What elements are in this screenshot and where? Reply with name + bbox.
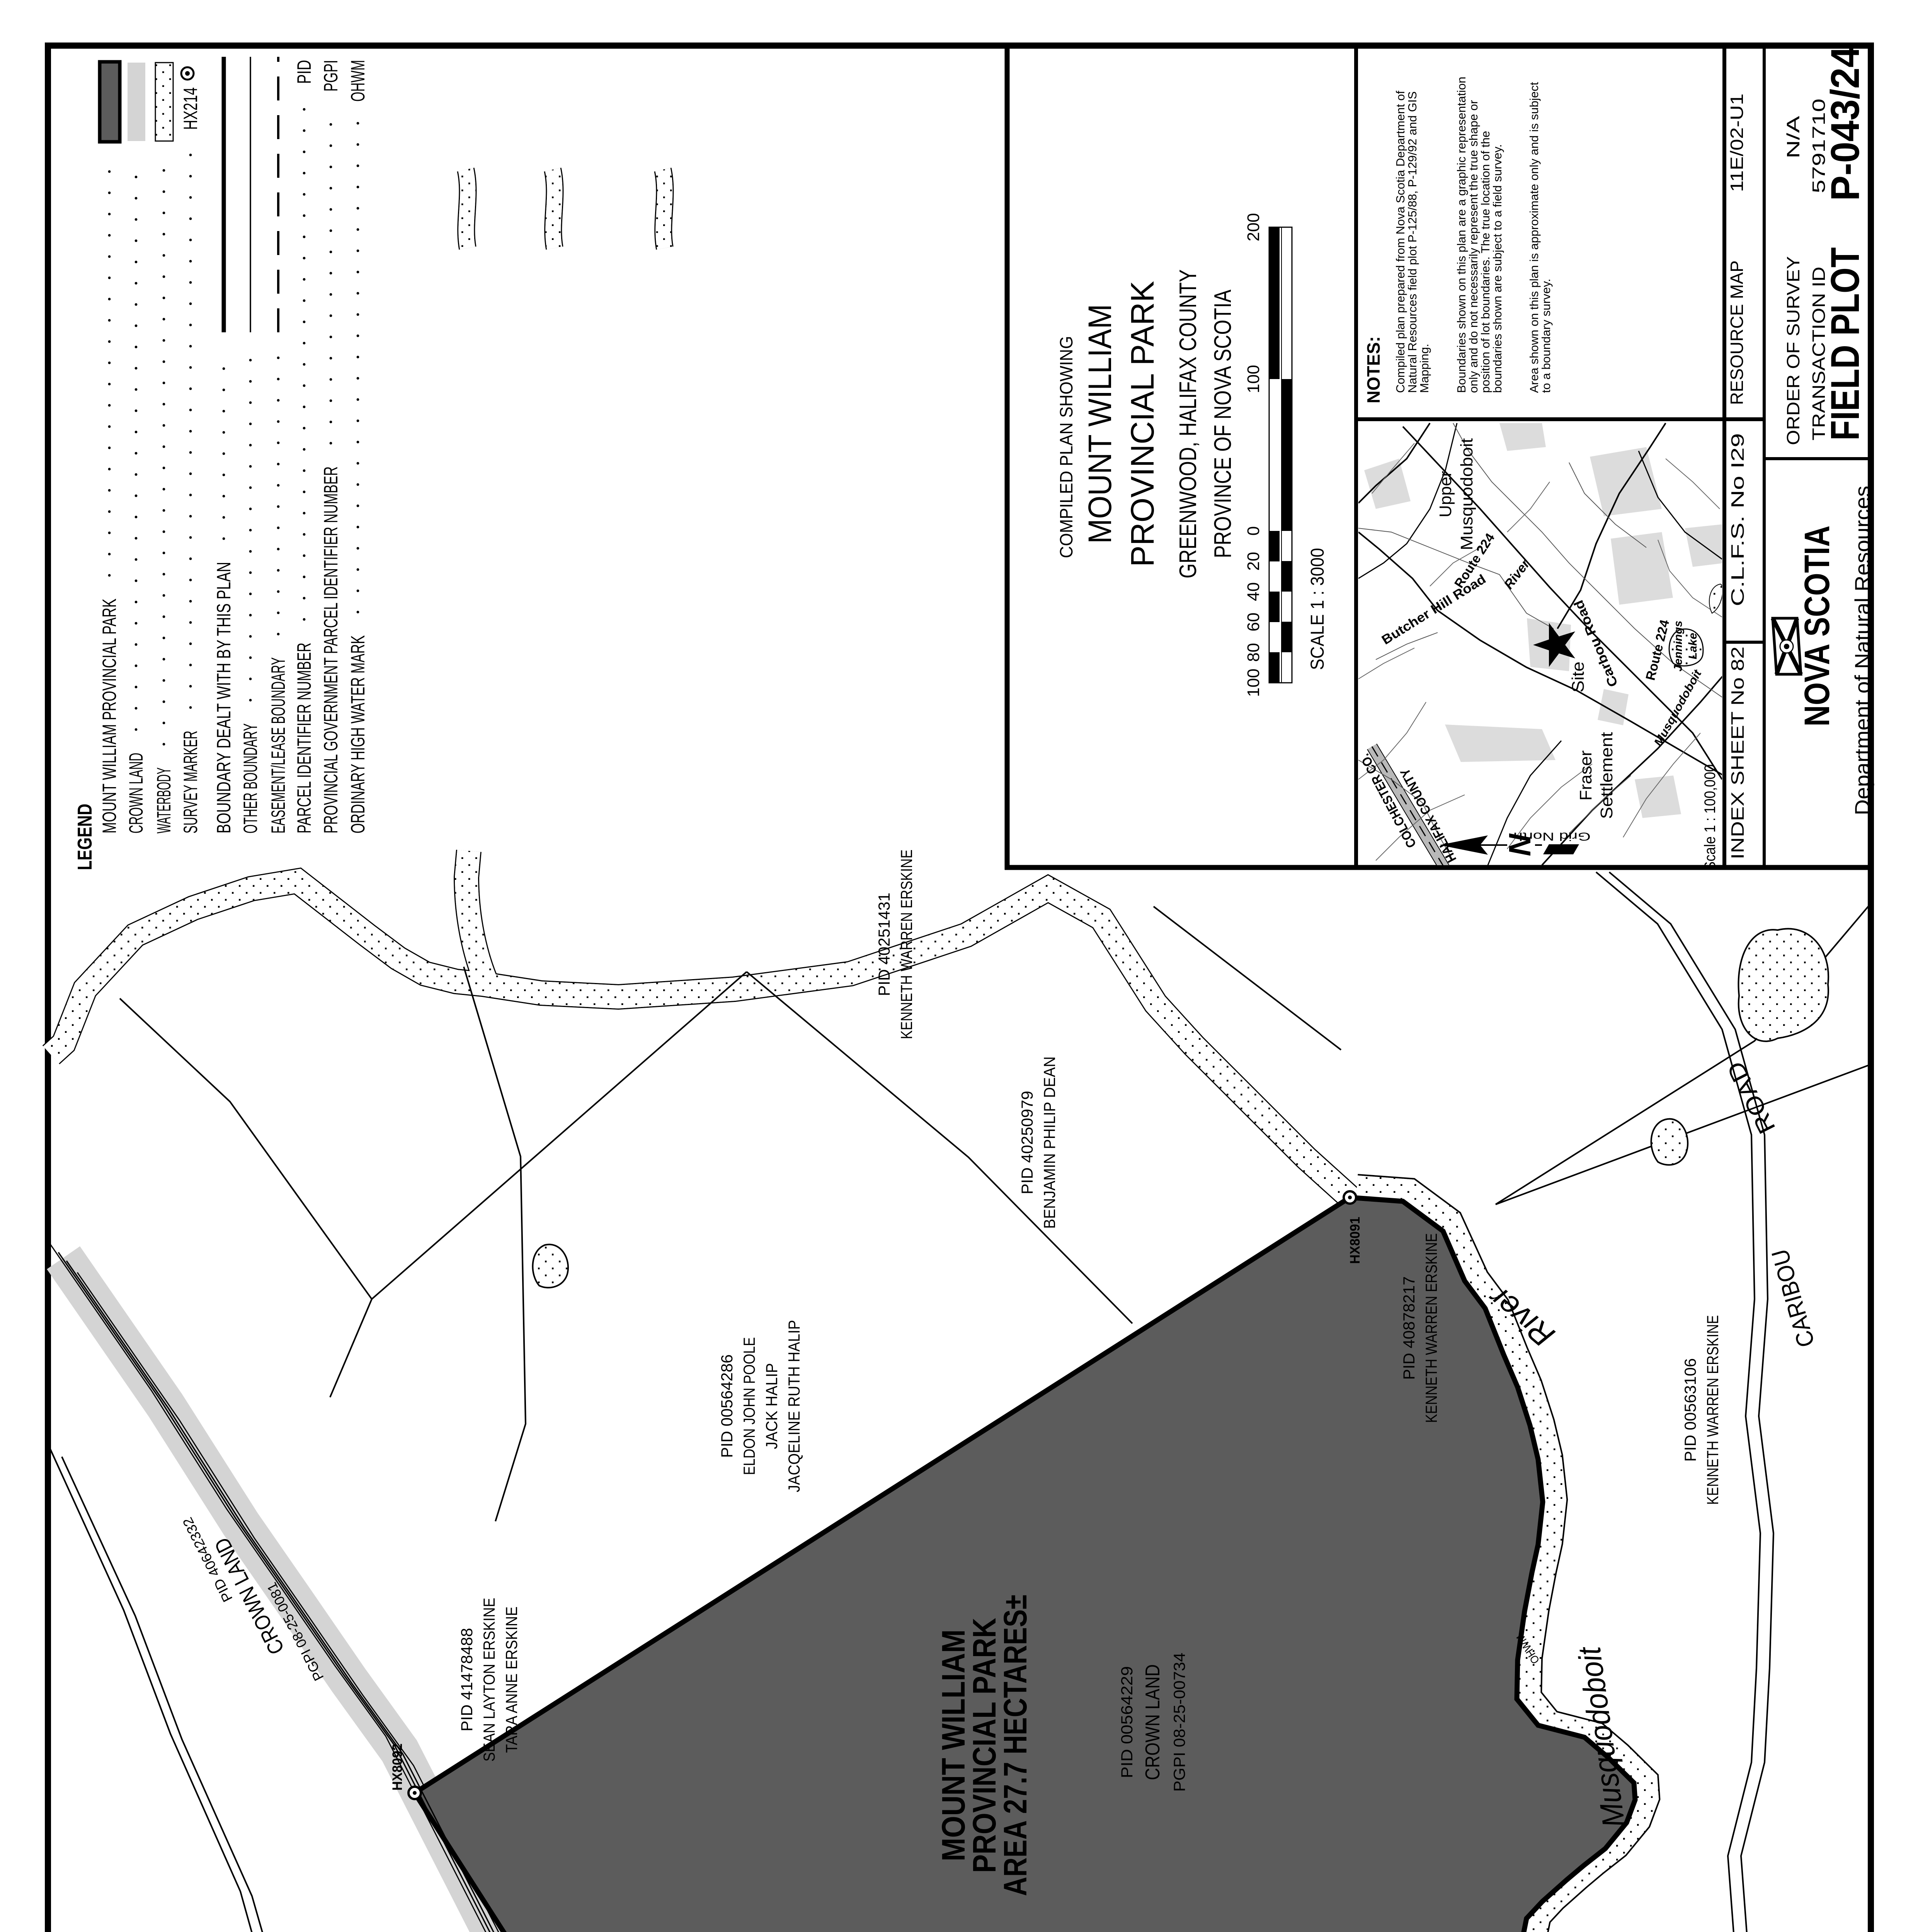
svg-text:JACQELINE RUTH HALIP: JACQELINE RUTH HALIP <box>785 1320 803 1492</box>
svg-text:PGPI: PGPI <box>320 60 342 92</box>
svg-text:Upper: Upper <box>1436 471 1455 517</box>
svg-text:MOUNT WILLIAM: MOUNT WILLIAM <box>1082 304 1118 544</box>
svg-text:EASEMENT/LEASE BOUNDARY: EASEMENT/LEASE BOUNDARY <box>267 657 289 833</box>
svg-text:Lake: Lake <box>1687 633 1699 659</box>
svg-text:MOUNT WILLIAM PROVINCIAL PA: MOUNT WILLIAM PROVINCIAL PARK <box>99 599 120 833</box>
svg-text:60: 60 <box>1244 612 1263 631</box>
svg-text:Grid North: Grid North <box>1513 830 1591 843</box>
svg-text:PROVINCIAL PARK: PROVINCIAL PARK <box>1124 281 1161 567</box>
svg-text:Mapping.: Mapping. <box>1418 344 1431 393</box>
svg-text:HX8091: HX8091 <box>1348 1217 1363 1264</box>
svg-text:N/A: N/A <box>1783 116 1803 158</box>
svg-text:ORDER OF SURVEY: ORDER OF SURVEY <box>1783 256 1803 445</box>
svg-text:PID 00564229: PID 00564229 <box>1118 1666 1136 1778</box>
svg-text:NOVA SCOTIA: NOVA SCOTIA <box>1797 526 1837 726</box>
svg-text:LEGEND: LEGEND <box>74 804 96 870</box>
svg-text:Area shown on this plan is app: Area shown on this plan is approximate o… <box>1527 82 1541 393</box>
svg-text:Site: Site <box>1569 662 1588 692</box>
svg-text:PID 00563106: PID 00563106 <box>1681 1358 1699 1462</box>
svg-text:80: 80 <box>1244 643 1263 662</box>
svg-text:P-043/24: P-043/24 <box>1823 46 1868 201</box>
svg-text:BENJAMIN PHILIP DEAN: BENJAMIN PHILIP DEAN <box>1040 1056 1059 1229</box>
svg-text:11E/02-U1: 11E/02-U1 <box>1727 94 1747 192</box>
svg-text:TARA ANNE ERSKINE: TARA ANNE ERSKINE <box>502 1607 521 1753</box>
svg-text:40: 40 <box>1244 582 1263 601</box>
svg-text:FIELD PLOT: FIELD PLOT <box>1823 247 1868 440</box>
svg-text:C.L.F.S. No I29: C.L.F.S. No I29 <box>1727 433 1748 606</box>
svg-text:Jennings: Jennings <box>1672 621 1685 672</box>
svg-text:200: 200 <box>1244 213 1263 241</box>
svg-text:position of lot boundaries. T: position of lot boundaries. The true loc… <box>1479 131 1492 393</box>
svg-text:PID 41478488: PID 41478488 <box>458 1628 476 1731</box>
svg-text:Settlement: Settlement <box>1597 732 1616 819</box>
svg-text:CROWN LAND: CROWN LAND <box>1142 1664 1164 1780</box>
svg-text:ORDINARY HIGH WATER MARK: ORDINARY HIGH WATER MARK <box>347 635 369 833</box>
svg-text:0: 0 <box>1244 526 1263 536</box>
svg-text:SURVEY MARKER: SURVEY MARKER <box>180 731 201 833</box>
svg-text:GREENWOOD, HALIFAX COUNTY: GREENWOOD, HALIFAX COUNTY <box>1175 269 1202 578</box>
svg-text:100: 100 <box>1244 668 1263 697</box>
svg-text:PARCEL IDENTIFIER NUMBER: PARCEL IDENTIFIER NUMBER <box>293 643 315 833</box>
svg-text:PROVINCE OF NOVA SCOTIA: PROVINCE OF NOVA SCOTIA <box>1210 289 1236 558</box>
svg-text:KENNETH WARREN ERSKINE: KENNETH WARREN ERSKINE <box>897 850 916 1039</box>
svg-text:Department of Natural Resource: Department of Natural Resources <box>1850 486 1874 815</box>
svg-text:Fraser: Fraser <box>1576 750 1595 801</box>
svg-text:ELDON JOHN POOLE: ELDON JOHN POOLE <box>740 1337 758 1475</box>
svg-text:PID 40251431: PID 40251431 <box>875 893 893 996</box>
svg-text:AREA 27.7 HECTARES±: AREA 27.7 HECTARES± <box>997 1595 1033 1896</box>
svg-text:INDEX SHEET No 82: INDEX SHEET No 82 <box>1727 646 1748 859</box>
svg-text:WATERBODY: WATERBODY <box>153 767 175 833</box>
svg-text:Scale 1 : 100,000: Scale 1 : 100,000 <box>1702 764 1719 871</box>
svg-text:PID 00564286: PID 00564286 <box>718 1354 736 1458</box>
svg-text:20: 20 <box>1244 552 1263 571</box>
svg-text:boundaries shown are subject t: boundaries shown are subject to a field … <box>1491 144 1504 393</box>
svg-text:Natural Resources field plot P: Natural Resources field plot P-125/88, P… <box>1406 91 1419 393</box>
svg-text:COMPILED PLAN SHOWING: COMPILED PLAN SHOWING <box>1056 336 1076 558</box>
svg-text:NOTES:: NOTES: <box>1363 336 1384 403</box>
svg-text:HX214: HX214 <box>180 87 201 130</box>
svg-text:RESOURCE MAP: RESOURCE MAP <box>1727 260 1747 405</box>
svg-text:OTHER BOUNDARY: OTHER BOUNDARY <box>240 723 261 833</box>
svg-text:to a boundary survey.: to a boundary survey. <box>1539 279 1553 393</box>
svg-text:KENNETH WARREN ERSKINE: KENNETH WARREN ERSKINE <box>1422 1233 1440 1423</box>
svg-text:only and do not necessarily re: only and do not necessarily represent th… <box>1467 100 1480 393</box>
svg-text:CROWN LAND: CROWN LAND <box>125 753 147 833</box>
svg-text:Boundaries shown on this plan: Boundaries shown on this plan are a grap… <box>1455 77 1468 393</box>
svg-text:Musquodoboit: Musquodoboit <box>1457 438 1476 550</box>
svg-text:JACK HALIP: JACK HALIP <box>762 1363 781 1449</box>
svg-text:PROVINCIAL GOVERNMENT PARCEL: PROVINCIAL GOVERNMENT PARCEL IDENTIFIER … <box>320 466 342 833</box>
svg-text:BOUNDARY DEALT WITH BY THI: BOUNDARY DEALT WITH BY THIS PLAN <box>213 562 235 833</box>
svg-text:100: 100 <box>1244 365 1263 393</box>
svg-text:OHWM: OHWM <box>347 60 369 102</box>
svg-text:SCALE 1 : 3000: SCALE 1 : 3000 <box>1307 548 1328 670</box>
svg-text:PGPI 08-25-00734: PGPI 08-25-00734 <box>1170 1653 1188 1792</box>
svg-text:PID: PID <box>293 60 315 84</box>
svg-text:SEAN LAYTON ERSKINE: SEAN LAYTON ERSKINE <box>480 1598 498 1762</box>
svg-text:PID 40878217: PID 40878217 <box>1400 1276 1418 1380</box>
svg-text:PID 40250979: PID 40250979 <box>1018 1091 1036 1194</box>
svg-text:Compiled plan prepared from No: Compiled plan prepared from Nova Scotia … <box>1394 90 1407 393</box>
svg-text:HX8092: HX8092 <box>390 1743 405 1791</box>
svg-text:KENNETH WARREN ERSKINE: KENNETH WARREN ERSKINE <box>1704 1315 1722 1505</box>
